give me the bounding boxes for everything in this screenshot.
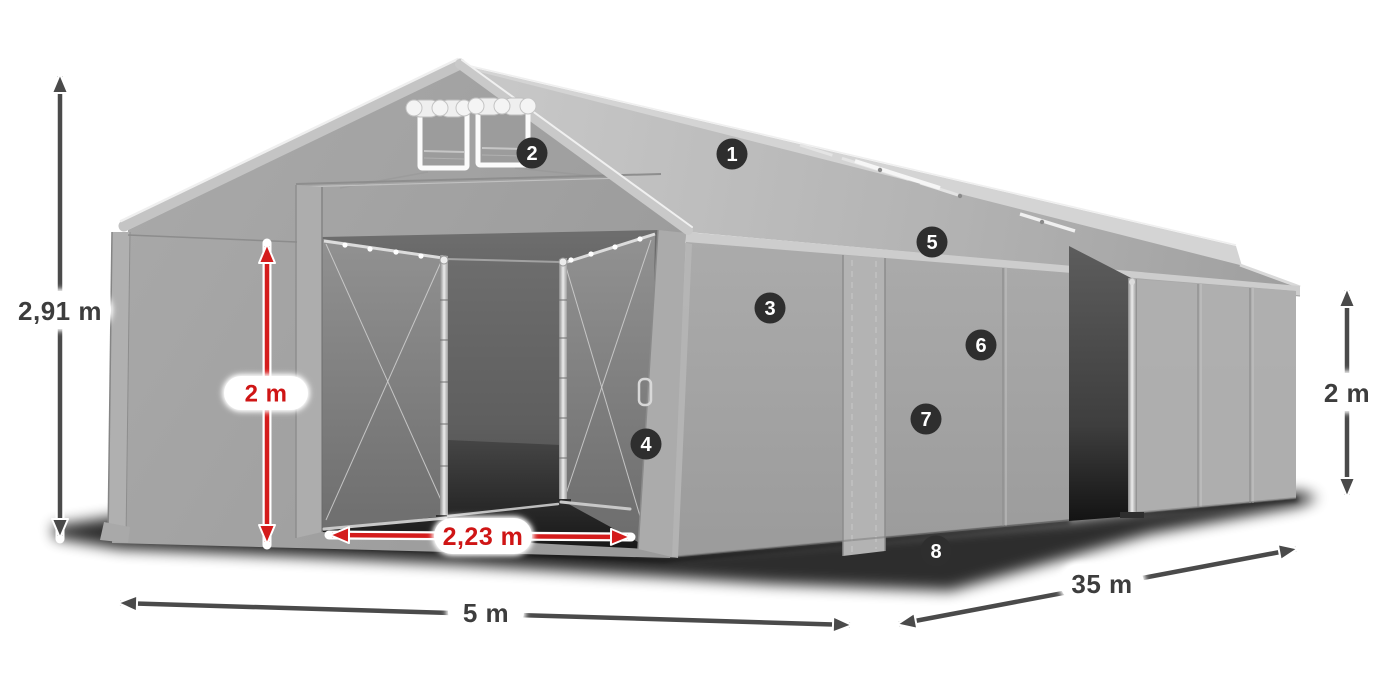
- dimension-label: 2,91 m: [18, 296, 102, 326]
- callout-number: 6: [975, 335, 986, 357]
- dimension-label: 35 m: [1071, 569, 1132, 599]
- callout-badge-1[interactable]: 1: [717, 139, 748, 170]
- side-wall-corner-band: [843, 255, 885, 556]
- interior-back-wall: [448, 258, 560, 445]
- left-door-curtain: [323, 239, 444, 531]
- dimension-label: 5 m: [463, 598, 509, 628]
- dimension-label: 2 m: [245, 381, 288, 408]
- side-entrance-opening: [1069, 246, 1133, 521]
- dimension-label: 2,23 m: [443, 523, 524, 551]
- callout-badge-2[interactable]: 2: [517, 138, 548, 169]
- dimension-total-height: 2,91 m: [9, 73, 111, 539]
- side-wall-rear-section: [1133, 279, 1296, 513]
- callout-number: 5: [926, 232, 937, 254]
- callout-badge-7[interactable]: 7: [911, 404, 942, 435]
- dimension-side-wall-height: 2 m: [1308, 287, 1386, 498]
- callout-badge-8[interactable]: 8: [921, 536, 952, 567]
- callout-number: 3: [764, 298, 775, 320]
- tent-diagram-stage: 2,91 m 2 m 2,23 m 5 m 35 m 2 m: [0, 0, 1400, 700]
- dimension-front-width: 5 m: [117, 593, 853, 631]
- front-left-edge-column: [100, 232, 130, 543]
- side-entrance-pole-base: [1120, 512, 1144, 518]
- callout-number: 1: [726, 144, 737, 166]
- callout-badge-3[interactable]: 3: [755, 293, 786, 324]
- callout-number: 8: [930, 541, 941, 563]
- side-entrance-pole: [1128, 278, 1137, 517]
- callout-badge-5[interactable]: 5: [917, 227, 948, 258]
- callout-number: 7: [920, 409, 931, 431]
- callout-badge-6[interactable]: 6: [966, 330, 997, 361]
- tent-diagram: 2,91 m 2 m 2,23 m 5 m 35 m 2 m: [0, 0, 1400, 700]
- dimension-label: 2 m: [1324, 378, 1370, 408]
- callout-number: 2: [526, 143, 537, 165]
- tent-illustration: [52, 59, 1318, 591]
- side-entrance-pole-joint: [1129, 279, 1135, 285]
- callout-number: 4: [640, 434, 652, 456]
- callout-badge-4[interactable]: 4: [631, 429, 662, 460]
- entrance-left-post: [296, 185, 322, 538]
